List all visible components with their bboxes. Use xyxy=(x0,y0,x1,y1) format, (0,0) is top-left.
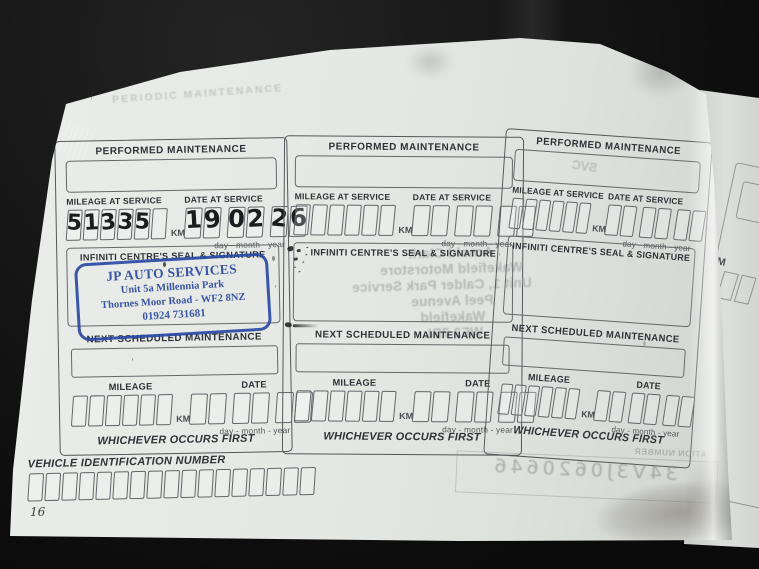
paper-smudge xyxy=(406,44,454,80)
handwritten-digit: 5 xyxy=(65,208,84,239)
mileage-label: MILEAGE xyxy=(71,381,189,393)
seal-signature-box: INFINITI CENTRE'S SEAL & SIGNATURE xyxy=(503,235,696,327)
next-mileage-cells: KM xyxy=(498,383,596,421)
mileage-at-service-cells: KM xyxy=(510,198,608,236)
performed-maintenance-box xyxy=(295,155,513,189)
page-number: 16 xyxy=(30,505,45,519)
service-fields-row: MILEAGE AT SERVICE KM DATE AT SERVICE da… xyxy=(294,191,516,249)
next-scheduled-box xyxy=(295,343,509,373)
showthrough-vin-label-fragment: ATION NUMBER xyxy=(634,446,707,459)
maintenance-record-panel-1: PERFORMED MAINTENANCE MILEAGE AT SERVICE… xyxy=(54,137,292,456)
handwritten-digit: 2 xyxy=(245,203,266,234)
vin-cells xyxy=(28,467,335,502)
next-maintenance-fields-row: MILEAGE KM DATE day - month - year xyxy=(295,377,515,435)
next-page-performed-box xyxy=(735,181,759,234)
mileage-label: MILEAGE xyxy=(295,377,413,388)
vin-section: VEHICLE IDENTIFICATION NUMBER xyxy=(28,452,335,502)
seal-signature-title: INFINITI CENTRE'S SEAL & SIGNATURE xyxy=(294,247,512,259)
next-page-cells xyxy=(717,271,755,305)
dirt-specks xyxy=(0,0,3,5)
next-maintenance-fields-row: MILEAGE KM DATE day - month - year xyxy=(71,379,285,439)
showthrough-vin-area: ATION NUMBER 34V3J0620646 xyxy=(451,438,721,506)
date-at-service-cells xyxy=(605,204,711,242)
maintenance-record-panel-3: PERFORMED MAINTENANCE SVC MILEAGE AT SER… xyxy=(483,128,713,469)
handwritten-digit: 0 xyxy=(226,203,247,234)
next-mileage-cells: KM xyxy=(72,394,191,427)
mileage-at-service-cells: 5 1 3 3 5 KM xyxy=(66,208,185,241)
service-book-page: PERIODIC MAINTENANCE PERFORMED MAINTENAN… xyxy=(0,0,759,569)
next-scheduled-title: NEXT SCHEDULED MAINTENANCE xyxy=(284,329,522,342)
showthrough-top-text: PERIODIC MAINTENANCE xyxy=(112,82,284,106)
handwritten-digit: 1 xyxy=(183,204,204,235)
next-scheduled-box xyxy=(71,345,278,378)
paper-smudge xyxy=(628,46,694,98)
service-book-photo: M PERIODIC MAINTENANCE PERFORMED MAINTEN… xyxy=(0,0,759,569)
mileage-at-service-label: MILEAGE AT SERVICE xyxy=(295,191,413,202)
mileage-at-service-label: MILEAGE AT SERVICE xyxy=(66,195,184,207)
handwritten-digit: 5 xyxy=(133,207,152,238)
handwritten-digit: 9 xyxy=(201,203,223,235)
seal-signature-box: INFINITI CENTRE'S SEAL & SIGNATURE xyxy=(293,242,514,323)
performed-maintenance-box xyxy=(66,157,278,193)
performed-maintenance-title: PERFORMED MAINTENANCE xyxy=(285,141,523,154)
next-date-cells xyxy=(594,390,700,428)
dealer-rubber-stamp: JP AUTO SERVICES Unit 5a Millennia Park … xyxy=(74,252,272,341)
ink-smudge xyxy=(285,322,292,327)
performed-maintenance-title: PERFORMED MAINTENANCE xyxy=(55,143,286,158)
handwritten-digit xyxy=(152,207,169,208)
mileage-at-service-cells: KM xyxy=(294,204,412,236)
next-mileage-cells: KM xyxy=(295,390,413,422)
